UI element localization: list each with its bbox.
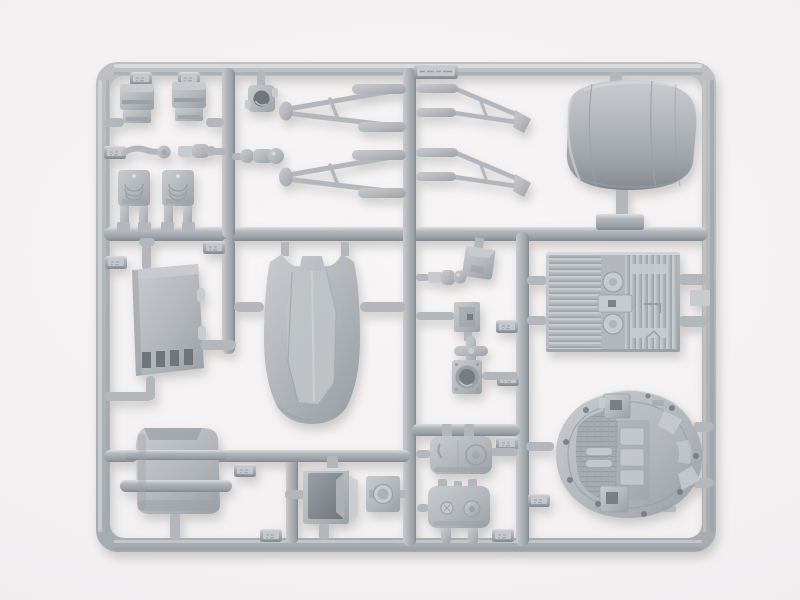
part-angled-small-box xyxy=(462,236,497,280)
molded-tab xyxy=(234,464,256,477)
part-ring-collar xyxy=(245,71,278,112)
part-round-port-plate xyxy=(366,476,406,512)
part-hull-shell xyxy=(234,242,406,424)
part-bracket-clamp-right xyxy=(172,82,224,127)
frame-top-highlight xyxy=(114,64,702,68)
part-seat-support-left xyxy=(117,170,151,232)
part-pivot-arm xyxy=(124,146,171,159)
runner-vertical-right xyxy=(516,232,529,546)
sprue xyxy=(96,62,716,552)
molded-tab xyxy=(496,320,518,333)
tub-box-top xyxy=(599,394,630,418)
frame-right-shadowline xyxy=(710,80,714,532)
part-tank-pod-lower xyxy=(417,479,490,544)
part-recessed-square-plate xyxy=(416,302,480,341)
part-greebled-hull-panel xyxy=(527,252,710,352)
molded-tab xyxy=(260,529,282,542)
stub-box-to-runner xyxy=(200,340,236,350)
part-cockpit-tub xyxy=(526,391,714,519)
part-seat-support-right xyxy=(161,170,195,232)
part-landing-strut-upper-left xyxy=(279,84,406,132)
part-landing-strut-upper-right xyxy=(416,84,531,133)
part-cylinder-fitting-small xyxy=(178,144,226,158)
part-round-recess-port xyxy=(452,360,518,394)
part-intake-duct xyxy=(120,428,232,540)
molded-tab xyxy=(130,72,152,85)
part-landing-strut-lower-left xyxy=(279,150,406,198)
part-cylinder-knob-fitting xyxy=(416,270,467,285)
part-cylinder-fitting-knob xyxy=(232,148,284,164)
molded-tab xyxy=(528,494,550,507)
frame-left-highlight xyxy=(98,80,102,532)
photo-model-kit-sprue xyxy=(0,0,800,600)
molded-tab xyxy=(105,256,127,269)
part-bracket-clamp-left xyxy=(104,84,154,127)
molded-tab xyxy=(492,529,514,542)
sprue-illustration xyxy=(0,0,800,600)
runner-horizontal-left-b xyxy=(214,450,410,462)
sprue-id-tab xyxy=(414,64,458,79)
part-landing-strut-lower-right xyxy=(416,148,531,197)
runner-vertical-midleft xyxy=(222,238,235,354)
tub-box-bottom xyxy=(600,486,628,512)
molded-tab xyxy=(203,241,225,254)
part-engine-cowl xyxy=(567,72,697,230)
frame-bottom-shadowline xyxy=(114,547,702,551)
